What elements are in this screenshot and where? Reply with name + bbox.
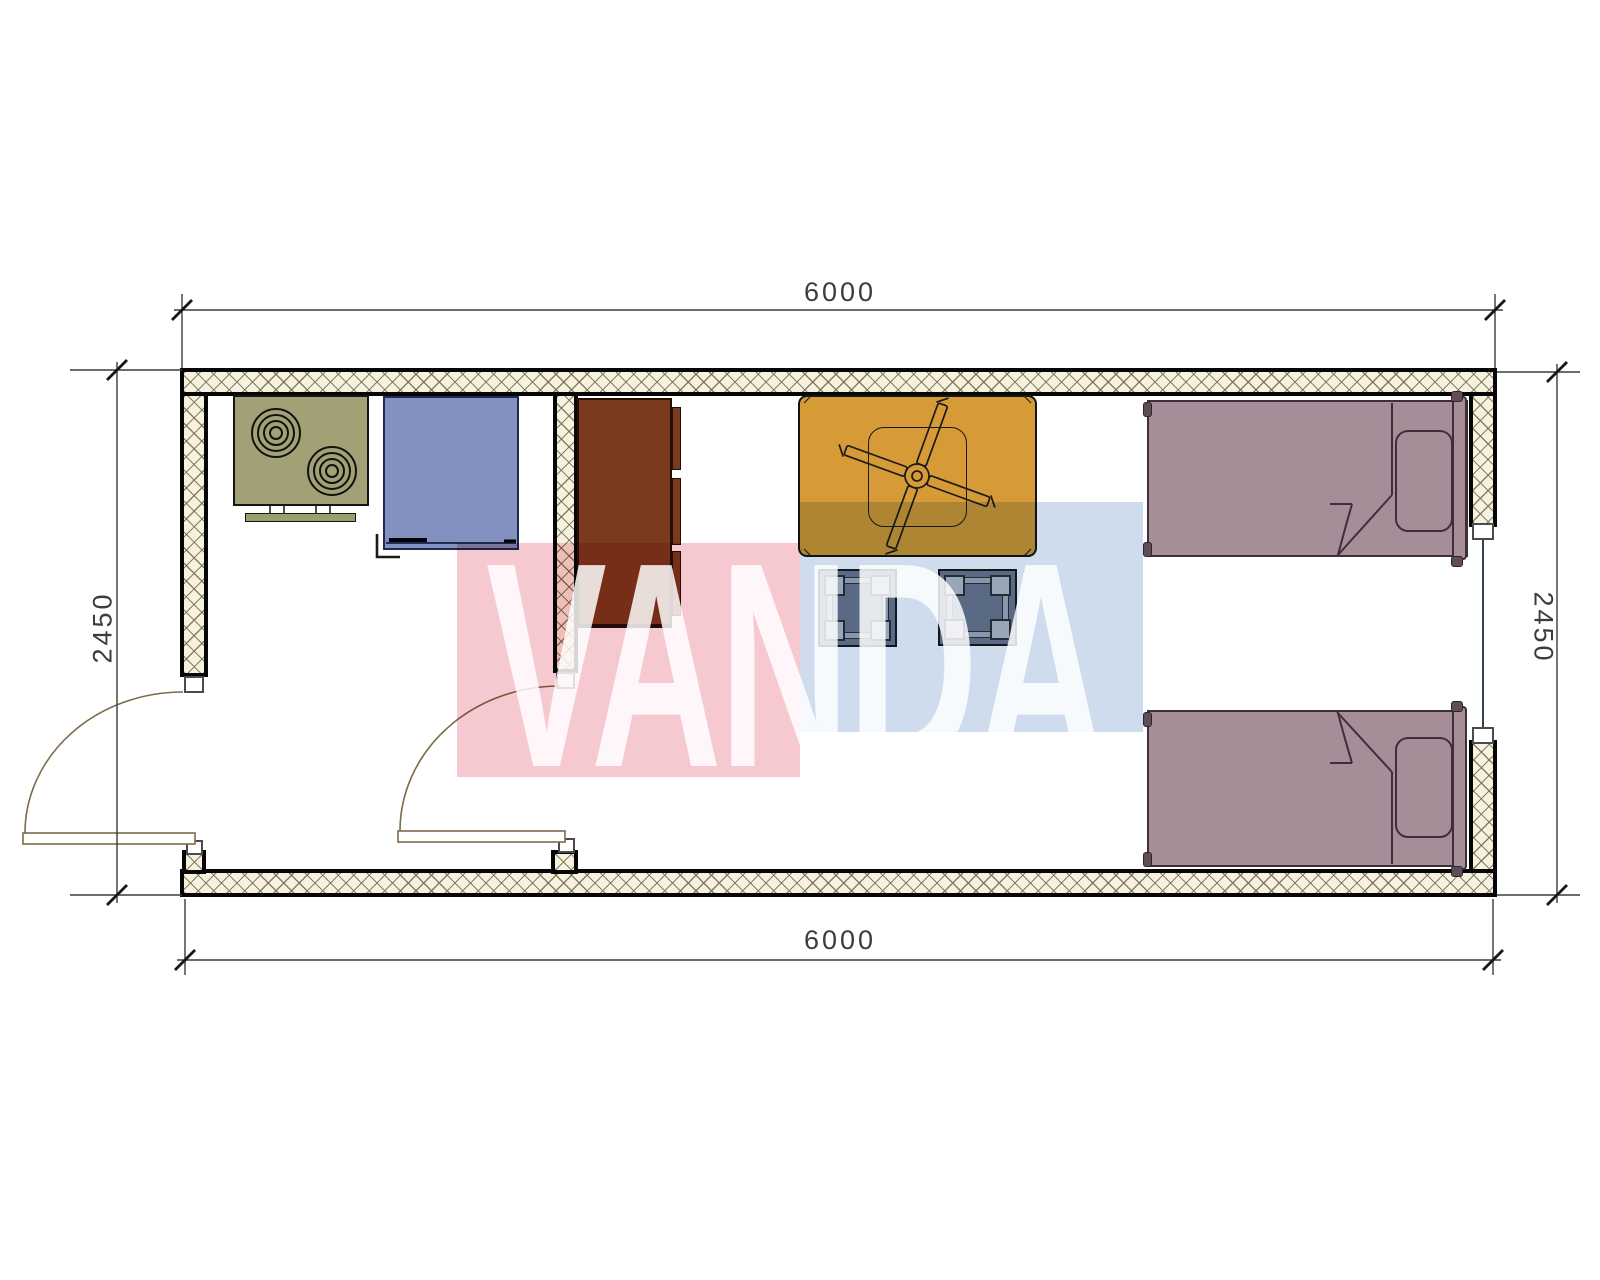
bed-bottom-post bbox=[1451, 701, 1463, 712]
bed-bottom-headboard bbox=[1452, 706, 1467, 870]
door-frame-left-wall bbox=[184, 676, 204, 693]
bed-top-post bbox=[1143, 542, 1152, 557]
bed-top-post bbox=[1143, 402, 1152, 417]
watermark-text: VANDA bbox=[485, 475, 1105, 855]
stove-burner-small-ring4 bbox=[325, 464, 339, 478]
stove bbox=[233, 395, 369, 506]
wall-left bbox=[180, 392, 208, 677]
bed-top-post bbox=[1451, 556, 1463, 567]
bed-bottom-post bbox=[1143, 852, 1152, 867]
bed-top-post bbox=[1451, 391, 1463, 402]
window-frame-top bbox=[1472, 523, 1494, 540]
window-frame-bottom bbox=[1472, 727, 1494, 744]
wardrobe-strip-1 bbox=[672, 407, 681, 470]
floor-plan-canvas: 6000 6000 2450 2450 VANDA bbox=[0, 0, 1600, 1280]
dimension-label-left: 2450 bbox=[88, 568, 119, 688]
bed-bottom-post bbox=[1143, 712, 1152, 727]
dimension-label-bottom: 6000 bbox=[770, 925, 910, 956]
bed-bottom-post bbox=[1451, 866, 1463, 877]
bed-top-pillow bbox=[1395, 430, 1453, 532]
bed-bottom-pillow bbox=[1395, 737, 1453, 838]
wall-bottom bbox=[180, 869, 1497, 897]
bed-top-headboard bbox=[1452, 396, 1467, 560]
dimension-label-top: 6000 bbox=[770, 277, 910, 308]
wall-right-upper bbox=[1469, 392, 1497, 527]
door-frame-entry-hinge bbox=[186, 840, 203, 855]
stove-burner-large-ring4 bbox=[269, 426, 283, 440]
wall-top bbox=[180, 368, 1497, 396]
dimension-label-right: 2450 bbox=[1528, 568, 1559, 688]
wall-right-lower bbox=[1469, 740, 1497, 873]
stove-base-bar bbox=[245, 513, 356, 522]
entry-door bbox=[23, 692, 195, 844]
